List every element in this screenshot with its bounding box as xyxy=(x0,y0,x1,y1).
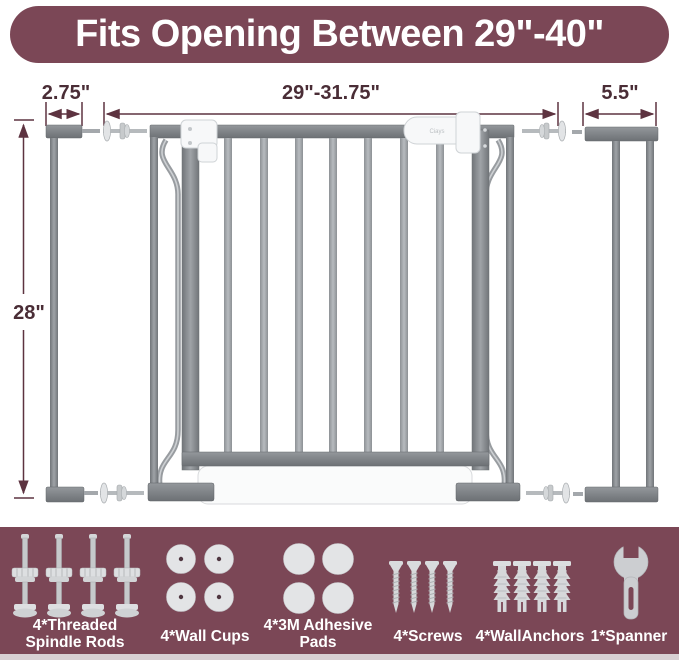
dim-left-extension-label: 2.75" xyxy=(42,82,90,104)
brand-logo: Ciays xyxy=(429,129,444,135)
gate-door-bars xyxy=(224,138,444,454)
banner-title: Fits Opening Between 29"-40" xyxy=(75,13,604,56)
dim-right-extension-label: 5.5" xyxy=(601,82,638,104)
spindle-bolt-top-right xyxy=(522,121,566,141)
label-wall-cups: 4*Wall Cups xyxy=(143,629,267,646)
spindle-bolt-bottom-right xyxy=(526,483,570,503)
spindle-bolt-bottom-left xyxy=(100,483,144,503)
wall-anchor-icon xyxy=(490,560,574,614)
label-spindle-rods: 4*ThreadedSpindle Rods xyxy=(3,618,147,651)
gate-illustration: 2.75" 29"-31.75" 5.5" 28" xyxy=(0,62,679,527)
threshold-bar xyxy=(198,466,472,504)
dimension-left-extension xyxy=(46,102,82,126)
left-extension-rod xyxy=(46,125,100,502)
adhesive-pad-icon xyxy=(281,542,357,616)
gate-diagram: 2.75" 29"-31.75" 5.5" 28" xyxy=(0,62,679,527)
label-adhesive-pads: 4*3M AdhesivePads xyxy=(256,618,380,651)
dim-gate-height-label: 28" xyxy=(13,302,45,324)
left-tension-rod xyxy=(160,140,179,487)
wall-cup-icon xyxy=(164,542,238,616)
label-spanner: 1*Spanner xyxy=(579,629,679,646)
dimension-gate-width xyxy=(104,102,558,126)
dim-gate-width-label: 29"-31.75" xyxy=(282,82,380,104)
spindle-rod-icon xyxy=(8,532,144,620)
screw-icon xyxy=(386,560,464,614)
right-extension-rod xyxy=(572,127,658,502)
label-wall-anchors: 4*WallAnchors xyxy=(463,629,597,646)
spindle-bolt-top-left xyxy=(103,121,147,141)
spanner-icon xyxy=(603,540,659,620)
dimension-right-extension xyxy=(583,102,656,126)
latch-handle: Ciays xyxy=(404,112,487,153)
top-banner: Fits Opening Between 29"-40" xyxy=(10,6,669,63)
bottom-strip xyxy=(0,654,679,660)
